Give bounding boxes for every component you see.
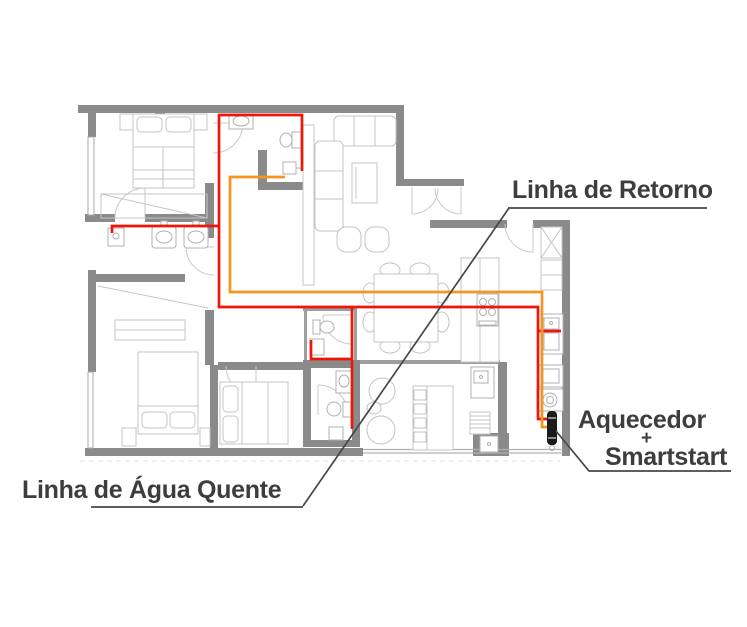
bedroom1-furniture: [101, 114, 207, 218]
floor-plan: [0, 0, 747, 627]
bedroom3-furniture: [220, 382, 288, 444]
living-room-furniture: [303, 116, 396, 285]
kitchen-fixtures: [461, 227, 563, 362]
bedroom2-furniture: [98, 286, 210, 446]
hot-water-line-label: Linha de Água Quente: [22, 477, 281, 503]
return-line-label: Linha de Retorno: [512, 177, 713, 203]
center-bathrooms-fixtures: [310, 320, 352, 440]
floor-plan-canvas: Linha de Retorno Linha de Água Quente Aq…: [0, 0, 747, 627]
heater-label-bottom: Smartstart: [605, 444, 727, 470]
water-heater: [547, 411, 557, 451]
